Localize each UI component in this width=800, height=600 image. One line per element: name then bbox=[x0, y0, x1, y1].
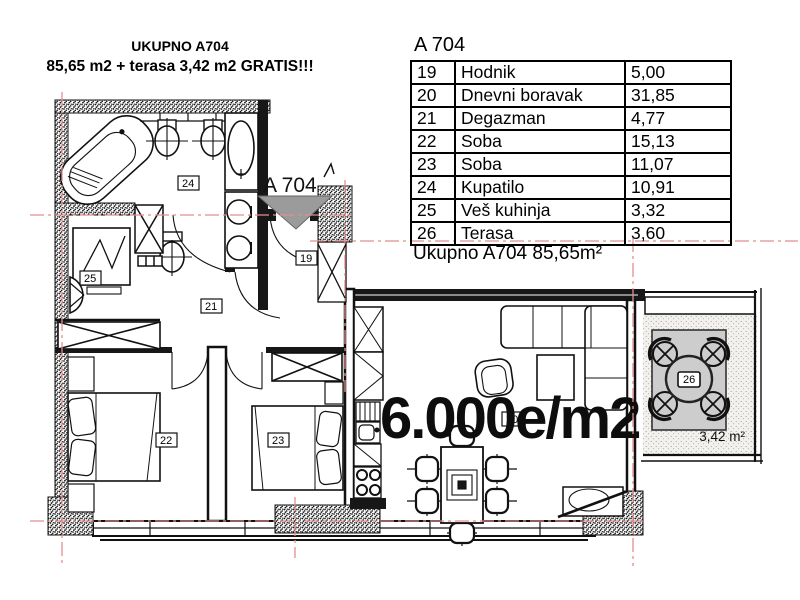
tv-console bbox=[558, 487, 628, 517]
wardrobe-23 bbox=[272, 353, 342, 381]
area-table-cell-name: Soba bbox=[455, 153, 625, 176]
floorplan-page: A 704 bbox=[0, 0, 800, 600]
promo-subtitle: 85,65 m2 + terasa 3,42 m2 GRATIS!!! bbox=[30, 58, 330, 76]
area-table-row: 24Kupatilo10,91 bbox=[411, 176, 731, 199]
area-table-cell-name: Soba bbox=[455, 130, 625, 153]
area-table-cell-area: 31,85 bbox=[625, 84, 731, 107]
area-table-cell-num: 20 bbox=[411, 84, 455, 107]
area-table-row: 26Terasa3,60 bbox=[411, 222, 731, 245]
area-table-cell-area: 15,13 bbox=[625, 130, 731, 153]
room-label-hodnik: 19 bbox=[300, 253, 312, 265]
bed-23 bbox=[252, 382, 343, 490]
area-table-cell-num: 25 bbox=[411, 199, 455, 222]
area-table-cell-area: 10,91 bbox=[625, 176, 731, 199]
area-table-cell-area: 3,32 bbox=[625, 199, 731, 222]
area-table-cell-num: 26 bbox=[411, 222, 455, 245]
area-table-row: 23Soba11,07 bbox=[411, 153, 731, 176]
area-table-block: A 704 19Hodnik5,0020Dnevni boravak31,852… bbox=[410, 34, 732, 246]
area-table-cell-name: Dnevni boravak bbox=[455, 84, 625, 107]
area-table-cell-name: Kupatilo bbox=[455, 176, 625, 199]
room-label-ves: 25 bbox=[84, 273, 96, 285]
area-table-cell-num: 19 bbox=[411, 61, 455, 84]
wardrobe-22 bbox=[58, 322, 160, 349]
area-table-cell-name: Terasa bbox=[455, 222, 625, 245]
area-table-total: Ukupno A704 85,65m² bbox=[413, 243, 602, 265]
area-table-cell-num: 23 bbox=[411, 153, 455, 176]
price-label: 6.000e/m2 bbox=[380, 386, 639, 451]
area-table-cell-area: 4,77 bbox=[625, 107, 731, 130]
area-table-cell-num: 22 bbox=[411, 130, 455, 153]
glass-partition bbox=[318, 242, 346, 302]
area-table-cell-area: 5,00 bbox=[625, 61, 731, 84]
area-table-row: 25Veš kuhinja3,32 bbox=[411, 199, 731, 222]
entrance-label: A 704 bbox=[263, 174, 317, 197]
area-table-row: 20Dnevni boravak31,85 bbox=[411, 84, 731, 107]
area-table-row: 22Soba15,13 bbox=[411, 130, 731, 153]
table-centerpiece bbox=[447, 470, 477, 500]
area-table-cell-name: Veš kuhinja bbox=[455, 199, 625, 222]
area-table: 19Hodnik5,0020Dnevni boravak31,8521Degaz… bbox=[410, 60, 732, 246]
bath-basin-cabinet bbox=[225, 113, 258, 190]
area-table-cell-area: 3,60 bbox=[625, 222, 731, 245]
area-table-cell-area: 11,07 bbox=[625, 153, 731, 176]
area-table-cell-num: 21 bbox=[411, 107, 455, 130]
terrace-area-label: 3,42 m² bbox=[699, 429, 745, 444]
terrace: 26 3,42 m² bbox=[641, 288, 763, 464]
area-table-cell-name: Hodnik bbox=[455, 61, 625, 84]
area-table-row: 21Degazman4,77 bbox=[411, 107, 731, 130]
double-washbasin bbox=[225, 192, 258, 268]
room-label-degazman: 21 bbox=[205, 301, 217, 313]
area-table-cell-num: 24 bbox=[411, 176, 455, 199]
area-table-title: A 704 bbox=[410, 34, 732, 57]
area-table-cell-name: Degazman bbox=[455, 107, 625, 130]
promo-header: UKUPNO A704 85,65 m2 + terasa 3,42 m2 GR… bbox=[30, 38, 330, 76]
room-label-soba23: 23 bbox=[272, 435, 284, 447]
promo-title: UKUPNO A704 bbox=[30, 38, 330, 54]
area-table-row: 19Hodnik5,00 bbox=[411, 61, 731, 84]
room-label-terasa: 26 bbox=[683, 374, 695, 386]
bed-22 bbox=[67, 357, 160, 512]
shaft-wardrobe bbox=[135, 205, 163, 266]
area-table-body: 19Hodnik5,0020Dnevni boravak31,8521Degaz… bbox=[411, 61, 731, 245]
room-label-kupatilo: 24 bbox=[182, 178, 194, 190]
room-label-soba22: 22 bbox=[160, 435, 172, 447]
